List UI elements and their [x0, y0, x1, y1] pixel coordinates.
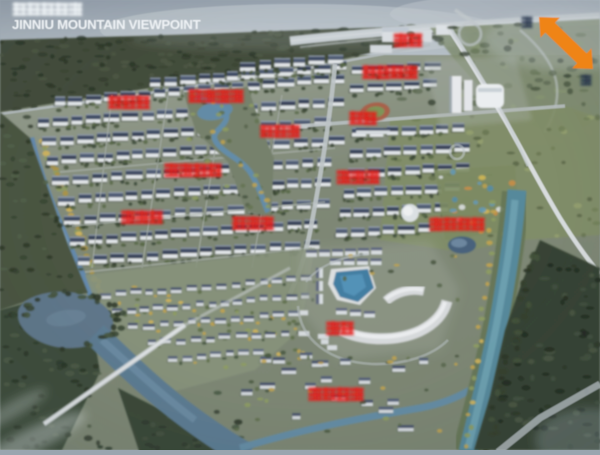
svg-text:JINNIU MOUNTAIN VIEWPOINT: JINNIU MOUNTAIN VIEWPOINT — [12, 17, 201, 32]
